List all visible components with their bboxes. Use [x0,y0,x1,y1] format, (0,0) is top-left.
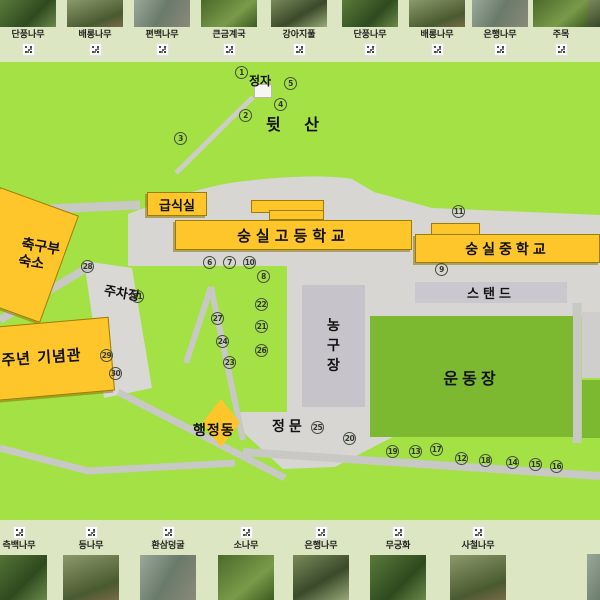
qr-code-icon[interactable] [473,527,484,538]
map-marker-6[interactable]: 6 [203,256,216,269]
map-marker-3[interactable]: 3 [174,132,187,145]
bottom-photo-strip: 측백나무등나무환삼덩굴소나무은행나무무궁화사철나무 [0,524,600,600]
qr-code-icon[interactable] [241,527,252,538]
tree-photo[interactable] [533,0,589,27]
map-marker-8[interactable]: 8 [257,270,270,283]
tree-photo[interactable] [409,0,465,27]
tree-photo[interactable] [342,0,398,27]
tree-label: 환삼덩굴 [151,541,184,552]
cafeteria-building[interactable]: 급식실 [147,192,207,216]
map-marker-27[interactable]: 27 [211,312,224,325]
tree-label: 배롱나무 [78,30,111,41]
sports-field[interactable]: 운동장 [370,316,573,437]
annex-building-lower[interactable] [269,210,324,220]
gate-label: 정문 [272,416,306,436]
map-marker-17[interactable]: 17 [430,443,443,456]
tree-item: 사철나무 [450,527,506,600]
middleschool-building[interactable]: 숭실중학교 [415,234,600,263]
qr-code-icon[interactable] [157,44,168,55]
parking-label-text: 주차장 [102,281,121,304]
tree-photo[interactable] [63,555,119,600]
tree-photo[interactable] [588,0,600,27]
map-marker-7[interactable]: 7 [223,256,236,269]
map-marker-18[interactable]: 18 [479,454,492,467]
side-block-green [582,380,600,438]
map-marker-11[interactable]: 11 [452,205,465,218]
tree-item: 소나무 [218,527,274,600]
tree-photo[interactable] [293,555,349,600]
map-marker-19[interactable]: 19 [386,445,399,458]
tree-item: 등나무 [63,527,119,600]
admin-building-label: 행정동 [193,420,235,440]
map-marker-12[interactable]: 12 [455,452,468,465]
tree-item: 배롱나무 [67,0,123,55]
tree-label: 은행나무 [304,541,337,552]
highschool-building[interactable]: 숭실고등학교 [175,220,412,250]
tree-photo[interactable] [271,0,327,27]
tree-item: 주목 [533,0,589,55]
basketball-court[interactable]: 농구장 [302,285,365,407]
qr-code-icon[interactable] [365,44,376,55]
qr-code-icon[interactable] [163,527,174,538]
tree-label: 무궁화 [386,541,411,552]
map-marker-1[interactable]: 1 [235,66,248,79]
map-marker-28[interactable]: 28 [81,260,94,273]
tree-photo[interactable] [67,0,123,27]
tree-item: 배롱나무 [409,0,465,55]
hill-label: 뒷 산 [266,111,328,135]
tree-photo[interactable] [450,555,506,600]
top-photo-strip: 단풍나무배롱나무편백나무큰금계국강아지풀단풍나무배롱나무은행나무주목 [0,0,600,62]
basketball-court-label: 농구장 [326,316,342,376]
pavilion-label: 정자 [249,72,271,89]
qr-code-icon[interactable] [14,527,25,538]
tree-photo[interactable] [134,0,190,27]
campus-map-page: 정자 뒷 산 급식실 숭실고등학교 숭실중학교 축구부숙소 주차장 0주년 기념… [0,0,600,600]
tree-label: 소나무 [234,541,259,552]
map-marker-2[interactable]: 2 [239,109,252,122]
map-marker-16[interactable]: 16 [550,460,563,473]
tree-item: 무궁화 [370,527,426,600]
tree-item [588,0,600,27]
tree-photo[interactable] [587,554,600,600]
tree-photo[interactable] [0,555,47,600]
qr-code-icon[interactable] [393,527,404,538]
map-marker-21[interactable]: 21 [255,320,268,333]
tree-item: 측백나무 [0,527,47,600]
tree-photo[interactable] [0,0,56,27]
qr-code-icon[interactable] [432,44,443,55]
qr-code-icon[interactable] [316,527,327,538]
tree-label: 등나무 [79,541,104,552]
tree-photo[interactable] [370,555,426,600]
qr-code-icon[interactable] [23,44,34,55]
map-marker-24[interactable]: 24 [216,335,229,348]
tree-item: 편백나무 [134,0,190,55]
qr-code-icon[interactable] [294,44,305,55]
qr-code-icon[interactable] [224,44,235,55]
map-marker-26[interactable]: 26 [255,344,268,357]
tree-item: 은행나무 [472,0,528,55]
map-marker-13[interactable]: 13 [409,445,422,458]
map-marker-23[interactable]: 23 [223,356,236,369]
tree-label: 배롱나무 [420,30,453,41]
tree-label: 사철나무 [461,541,494,552]
tree-photo[interactable] [140,555,196,600]
map-marker-20[interactable]: 20 [343,432,356,445]
tree-item: 환삼덩굴 [140,527,196,600]
tree-label: 편백나무 [145,30,178,41]
tree-item: 은행나무 [293,527,349,600]
map-marker-9[interactable]: 9 [435,263,448,276]
tree-item [587,527,600,600]
map-marker-4[interactable]: 4 [274,98,287,111]
map-marker-30[interactable]: 30 [109,367,122,380]
map-marker-10[interactable]: 10 [243,256,256,269]
qr-code-icon[interactable] [86,527,97,538]
map-marker-25[interactable]: 25 [311,421,324,434]
tree-label: 측백나무 [2,541,35,552]
parking-label: 주차장 [102,281,121,304]
qr-code-icon[interactable] [495,44,506,55]
stand-structure[interactable]: 스탠드 [415,282,567,303]
soccer-dorm-label: 축구부숙소 [18,236,61,276]
map-marker-15[interactable]: 15 [529,458,542,471]
tree-label: 단풍나무 [353,30,386,41]
tree-item: 강아지풀 [271,0,327,55]
map-marker-31[interactable]: 31 [131,290,144,303]
side-block-gray [582,312,600,378]
qr-code-icon[interactable] [90,44,101,55]
soccer-dorm-line2: 숙소 [17,253,45,273]
tree-photo[interactable] [472,0,528,27]
tree-label: 강아지풀 [282,30,315,41]
tree-label: 큰금계국 [212,30,245,41]
tree-item: 단풍나무 [342,0,398,55]
map-marker-22[interactable]: 22 [255,298,268,311]
tree-label: 은행나무 [483,30,516,41]
tree-item: 단풍나무 [0,0,56,55]
tree-photo[interactable] [218,555,274,600]
map-marker-14[interactable]: 14 [506,456,519,469]
map-marker-29[interactable]: 29 [100,349,113,362]
tree-photo[interactable] [201,0,257,27]
qr-code-icon[interactable] [556,44,567,55]
tree-label: 주목 [553,30,570,41]
tree-item: 큰금계국 [201,0,257,55]
map-marker-5[interactable]: 5 [284,77,297,90]
tree-label: 단풍나무 [11,30,44,41]
